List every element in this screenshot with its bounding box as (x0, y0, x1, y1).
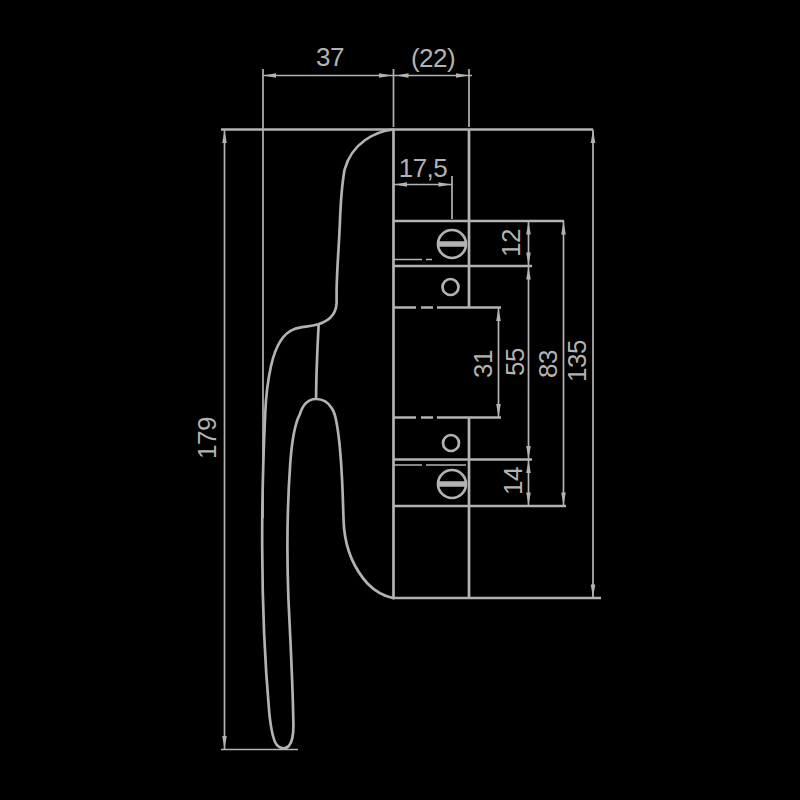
handle-stem-crease (316, 326, 319, 398)
arrowhead (222, 736, 227, 749)
arrowhead (379, 73, 392, 78)
top-pin-hole (443, 279, 459, 295)
fasteners (438, 230, 466, 498)
arrowhead (263, 73, 276, 78)
arrowhead (526, 446, 531, 459)
arrowhead (561, 493, 566, 506)
dim-label-179: 179 (192, 417, 222, 459)
dim-label-135: 135 (562, 340, 592, 382)
drawing-canvas: 37 (22) 17,5 12 31 55 83 135 14 179 (0, 0, 800, 800)
bottom-pin-hole (443, 435, 459, 451)
arrowhead (526, 253, 531, 266)
dim-label-14: 14 (498, 467, 528, 495)
handle-outline (262, 130, 393, 749)
technical-drawing: 37 (22) 17,5 12 31 55 83 135 14 179 (0, 0, 800, 800)
arrowhead (496, 308, 501, 321)
dim-label-31: 31 (468, 350, 498, 378)
arrowhead (526, 267, 531, 280)
dim-label-12: 12 (496, 229, 526, 257)
dim-label-55: 55 (500, 348, 530, 376)
arrowhead (396, 73, 409, 78)
arrowhead (496, 404, 501, 417)
dim-label-83: 83 (533, 350, 563, 378)
arrowhead (591, 130, 596, 143)
arrowhead (591, 585, 596, 598)
dim-label-37: 37 (316, 42, 344, 72)
arrowhead (561, 222, 566, 235)
dim-label-22: (22) (411, 43, 455, 73)
arrowhead (456, 73, 469, 78)
arrowhead (222, 130, 227, 143)
arrowhead (526, 222, 531, 235)
dim-label-17-5: 17,5 (399, 153, 448, 183)
handle-silhouette (262, 130, 393, 749)
